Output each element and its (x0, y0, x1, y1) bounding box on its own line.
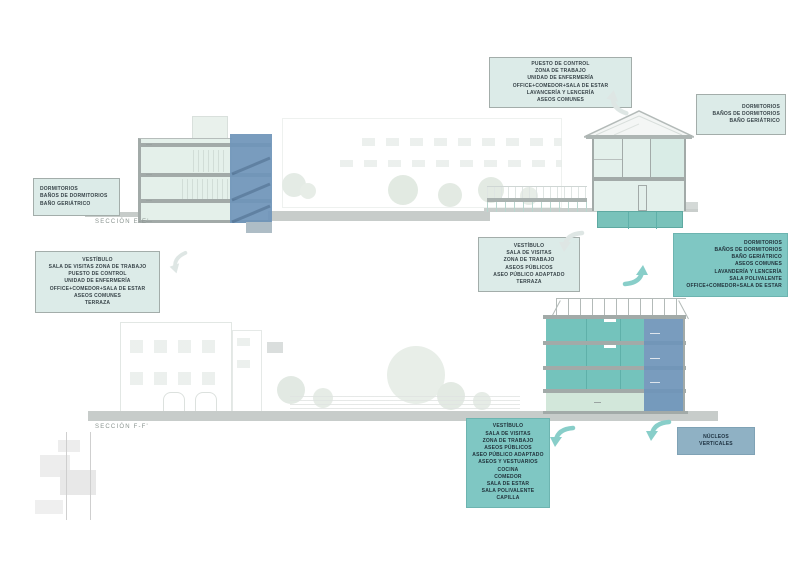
tree (438, 183, 462, 207)
label-box-text: DORMITORIOS BAÑOS DE DORMITORIOS BAÑO GE… (697, 104, 785, 126)
window-row (362, 138, 562, 146)
label-box-text: DORMITORIOS BAÑOS DE DORMITORIOS BAÑO GE… (34, 186, 119, 208)
base-slab (543, 411, 688, 414)
partition (586, 370, 587, 389)
stair-shaft (638, 185, 647, 211)
section-ee-label: SECCIÓN E-E' (95, 219, 150, 225)
floor-band (546, 319, 644, 341)
partition (586, 345, 587, 366)
window-row (130, 340, 222, 353)
floor-band (546, 345, 644, 366)
tree (300, 183, 316, 199)
sketch-block (35, 500, 63, 514)
label-box-text: VESTÍBULO SALA DE VISITAS ZONA DE TRABAJ… (467, 423, 549, 502)
partition (622, 139, 623, 177)
connector-corridor (487, 186, 587, 212)
background-elevation-bottom (115, 318, 525, 418)
section-ff-drawing (540, 296, 692, 416)
label-box-vestibule-left: VESTÍBULO SALA DE VISITAS ZONA DE TRABAJ… (35, 251, 160, 313)
sketch-line (66, 432, 67, 520)
tree (388, 175, 418, 205)
opening (604, 319, 616, 322)
label-box-text: VESTÍBULO SALA DE VISITAS ZONA DE TRABAJ… (36, 257, 159, 307)
sketch-line (90, 432, 91, 520)
section-ee-drawing (130, 110, 280, 235)
label-box-ground-program: VESTÍBULO SALA DE VISITAS ZONA DE TRABAJ… (466, 418, 550, 508)
curved-arrow-up-right-icon (622, 263, 648, 287)
window-row (130, 372, 222, 385)
ground-band (268, 211, 490, 221)
roof-railing (487, 186, 587, 198)
partition (620, 319, 621, 341)
label-box-vertical-cores: NÚCLEOS VERTICALES (677, 427, 755, 455)
level-tick (146, 200, 152, 201)
section-ff-label: SECCIÓN F-F' (95, 424, 149, 430)
floor-slab (594, 177, 684, 181)
partition (620, 370, 621, 389)
level-tick (650, 358, 660, 359)
glazed-corridor (487, 202, 587, 212)
partition (656, 212, 657, 229)
floor-band (546, 370, 644, 389)
basement-floor (597, 211, 683, 228)
level-tick (650, 382, 660, 383)
stair-flights (230, 134, 272, 223)
partition (586, 319, 587, 341)
roof-parapet (556, 298, 686, 315)
basement-volume (246, 222, 272, 233)
level-tick (594, 402, 601, 403)
stair-rail-lines (182, 179, 228, 201)
site-plan-sketch (28, 430, 128, 530)
roof-block (267, 342, 283, 353)
label-box-dormitories-left: DORMITORIOS BAÑOS DE DORMITORIOS BAÑO GE… (33, 178, 120, 216)
sketch-block (58, 440, 80, 452)
level-tick (146, 144, 152, 145)
level-tick (146, 174, 152, 175)
building-body (592, 139, 686, 211)
curved-arrow-left-icon (166, 250, 194, 277)
label-box-dormitories-right: DORMITORIOS BAÑOS DE DORMITORIOS BAÑO GE… (696, 94, 786, 135)
label-box-dormitories-program: DORMITORIOS BAÑOS DE DORMITORIOS BAÑO GE… (673, 233, 788, 297)
window-row (237, 338, 253, 346)
fence-louvers (290, 396, 520, 410)
right-wall (683, 319, 685, 411)
curved-arrow-down-left-icon (646, 419, 672, 443)
vertical-core (644, 319, 684, 411)
room-shade (650, 139, 684, 177)
label-box-text: DORMITORIOS BAÑOS DE DORMITORIOS BAÑO GE… (674, 240, 787, 290)
window-row (340, 160, 562, 167)
label-box-text: NÚCLEOS VERTICALES (678, 434, 754, 448)
window-row (237, 360, 253, 368)
stair-core (230, 134, 272, 223)
curved-arrow-down-left-icon (559, 230, 585, 254)
partition (620, 345, 621, 366)
partition (628, 212, 629, 229)
level-tick (650, 333, 660, 334)
opening (604, 345, 616, 348)
curved-arrow-down-left-icon (550, 425, 576, 449)
partition (650, 139, 651, 177)
architectural-sections-sheet: PUESTO DE CONTROL ZONA DE TRABAJO UNIDAD… (0, 0, 795, 561)
stair-rail-lines (193, 150, 227, 172)
shelf-line (594, 159, 622, 160)
section-gabled-drawing (584, 109, 696, 231)
